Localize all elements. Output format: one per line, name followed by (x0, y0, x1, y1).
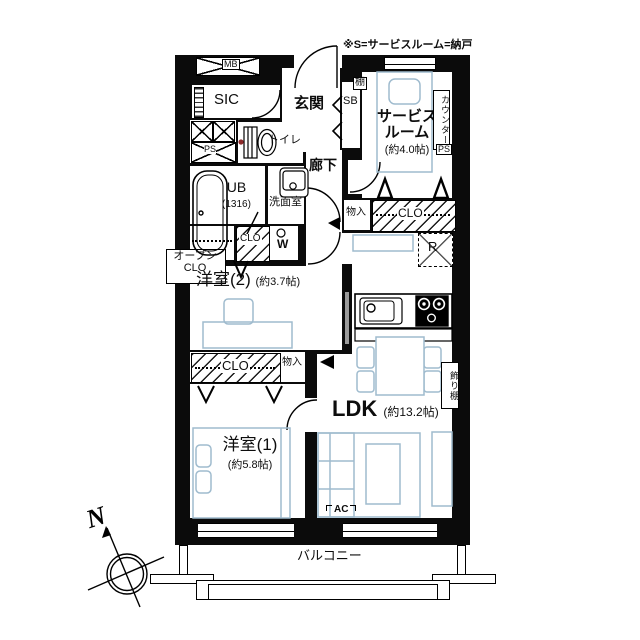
sb-label: SB (343, 96, 358, 108)
window-right (343, 523, 437, 538)
balcony-edge-inner (208, 584, 438, 600)
fridge-label: R (428, 240, 437, 254)
storage-mid-label: 物入 (282, 358, 302, 369)
floor-plan: N ※S=サービスルーム=納戸 MB SIC 玄関 SB 棚 サービス ルーム … (0, 0, 640, 640)
ub-label: UB(1316) (222, 180, 251, 210)
washroom-label: 洗面室 (269, 197, 302, 209)
closet-right-label: CLO (397, 207, 424, 220)
compass-n-label: N (82, 500, 111, 534)
toilet-label: トイレ (268, 135, 301, 147)
bedroom1-label: 洋室(1)(約5.8帖) (210, 436, 290, 472)
ldk-upper (352, 264, 452, 354)
display-shelf-label: 飾り棚 (441, 362, 459, 409)
room-washroom (268, 166, 304, 224)
shaft-box-1 (191, 121, 213, 142)
storage-right-label: 物入 (346, 208, 366, 219)
window-left (198, 523, 294, 538)
ps-left-label: PS (204, 145, 216, 154)
mb-label: MB (222, 59, 240, 70)
ps-right-label: PS (436, 144, 452, 155)
balcony-label: バルコニー (297, 549, 362, 563)
bedroom1-door-opening (303, 398, 319, 432)
washer-label: W (277, 238, 288, 251)
genkan-label: 玄関 (294, 96, 324, 112)
ldk-lower (317, 354, 452, 518)
sic-label: SIC (214, 92, 239, 108)
corridor-label: 廊下 (309, 158, 337, 173)
sliding-door (345, 292, 349, 344)
ac-label: AC (334, 505, 348, 516)
shaft-box-2 (213, 121, 235, 142)
north-compass-icon: N (82, 500, 164, 607)
sic-shoe-shelf (194, 87, 204, 118)
room-sb (342, 82, 360, 148)
closet-mid-label: CLO (221, 359, 250, 373)
ldk-label: LDK (約13.2帖) (332, 397, 439, 420)
front-door-opening (294, 55, 342, 68)
counter-label: カウンター (433, 90, 450, 150)
shelf-label: 棚 (353, 77, 367, 90)
balcony-side-right (457, 545, 466, 577)
open-closet-pole (192, 240, 232, 242)
bedroom2-label: 洋室(2) (約3.7帖) (196, 271, 300, 289)
service-door-opening (348, 160, 362, 194)
service-window (384, 57, 436, 70)
plan-note: ※S=サービスルーム=納戸 (343, 40, 473, 52)
balcony-side-left (179, 545, 188, 577)
closet-small-label: CLO (239, 234, 262, 245)
